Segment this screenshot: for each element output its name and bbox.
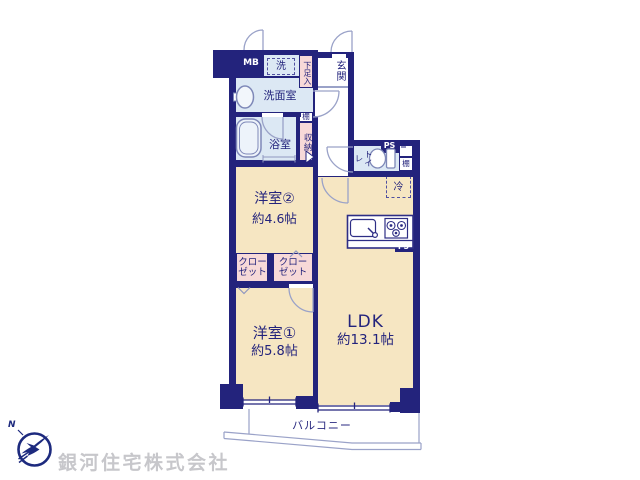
room2-label: 洋室② [236, 192, 313, 208]
closet-right-label: クローゼット [274, 256, 312, 280]
company-logo [18, 430, 51, 466]
ps-kitchen-label: PS [395, 243, 412, 252]
closet-left-label: クローゼット [237, 256, 268, 280]
wall-hall-ldk-opening [318, 176, 348, 177]
bathroom-label: 浴室 [262, 138, 298, 152]
wall-room1-door-opening [289, 282, 313, 284]
bird-icon [22, 435, 50, 456]
entrance-label: 玄関 [333, 57, 346, 85]
storage-label: 収納 [300, 127, 313, 158]
room-ldk [318, 177, 413, 405]
ldk-label: LDK [318, 313, 413, 331]
meter-box-label: MB [240, 56, 262, 72]
washer-label: 洗 [267, 58, 295, 75]
wall-hall-left-upper [313, 52, 318, 90]
washroom-label: 洗面室 [254, 89, 306, 103]
balcony-label: バルコニー [272, 420, 372, 433]
shoe-cabinet-label: 下足入 [300, 57, 313, 88]
wall-center [313, 116, 318, 400]
wall-room1-top [229, 282, 289, 288]
wall-entrance-top [318, 52, 332, 58]
wall-washroom-bath-a [229, 112, 262, 117]
room1-label: 洋室① [236, 325, 313, 342]
entrance-step-line [318, 86, 348, 88]
fridge-label: 冷 [386, 181, 411, 194]
room-western2 [236, 167, 313, 253]
floor-plan: MB 洗 下足入 玄関 洗面室 棚 収納 浴室 トイレ PS 棚 冷 PS 洋室… [0, 0, 640, 480]
room2-size: 約4.6帖 [236, 212, 313, 226]
pillar-bottom-center [296, 396, 318, 409]
company-name: 銀河住宅株式会社 [58, 448, 230, 475]
wall-right [413, 140, 420, 412]
toilet-label: トイレ [356, 146, 368, 171]
wall-washer-sill [264, 76, 299, 78]
wall-room2-top [229, 160, 318, 167]
meter-box-door-arc [244, 30, 263, 50]
shelf-toilet-label: 棚 [399, 159, 413, 170]
wall-ldk-top [348, 171, 420, 177]
compass-north-label: N [8, 420, 16, 430]
wall-left [229, 78, 236, 404]
ps-toilet-label: PS [381, 141, 398, 152]
pillar-bottom-left [220, 384, 243, 409]
ldk-size: 約13.1帖 [318, 333, 413, 348]
wall-washroom-door-opening [313, 90, 315, 116]
shelf-upper-label: 棚 [299, 113, 313, 122]
wall-closet-divider [268, 253, 273, 282]
room1-size: 約5.8帖 [236, 345, 313, 359]
washroom-door-arc [313, 91, 339, 117]
entrance-door-arc [331, 31, 352, 52]
pillar-bottom-right [400, 388, 420, 413]
wall-bath-door-opening [262, 112, 283, 113]
wall-top-a [264, 50, 318, 55]
